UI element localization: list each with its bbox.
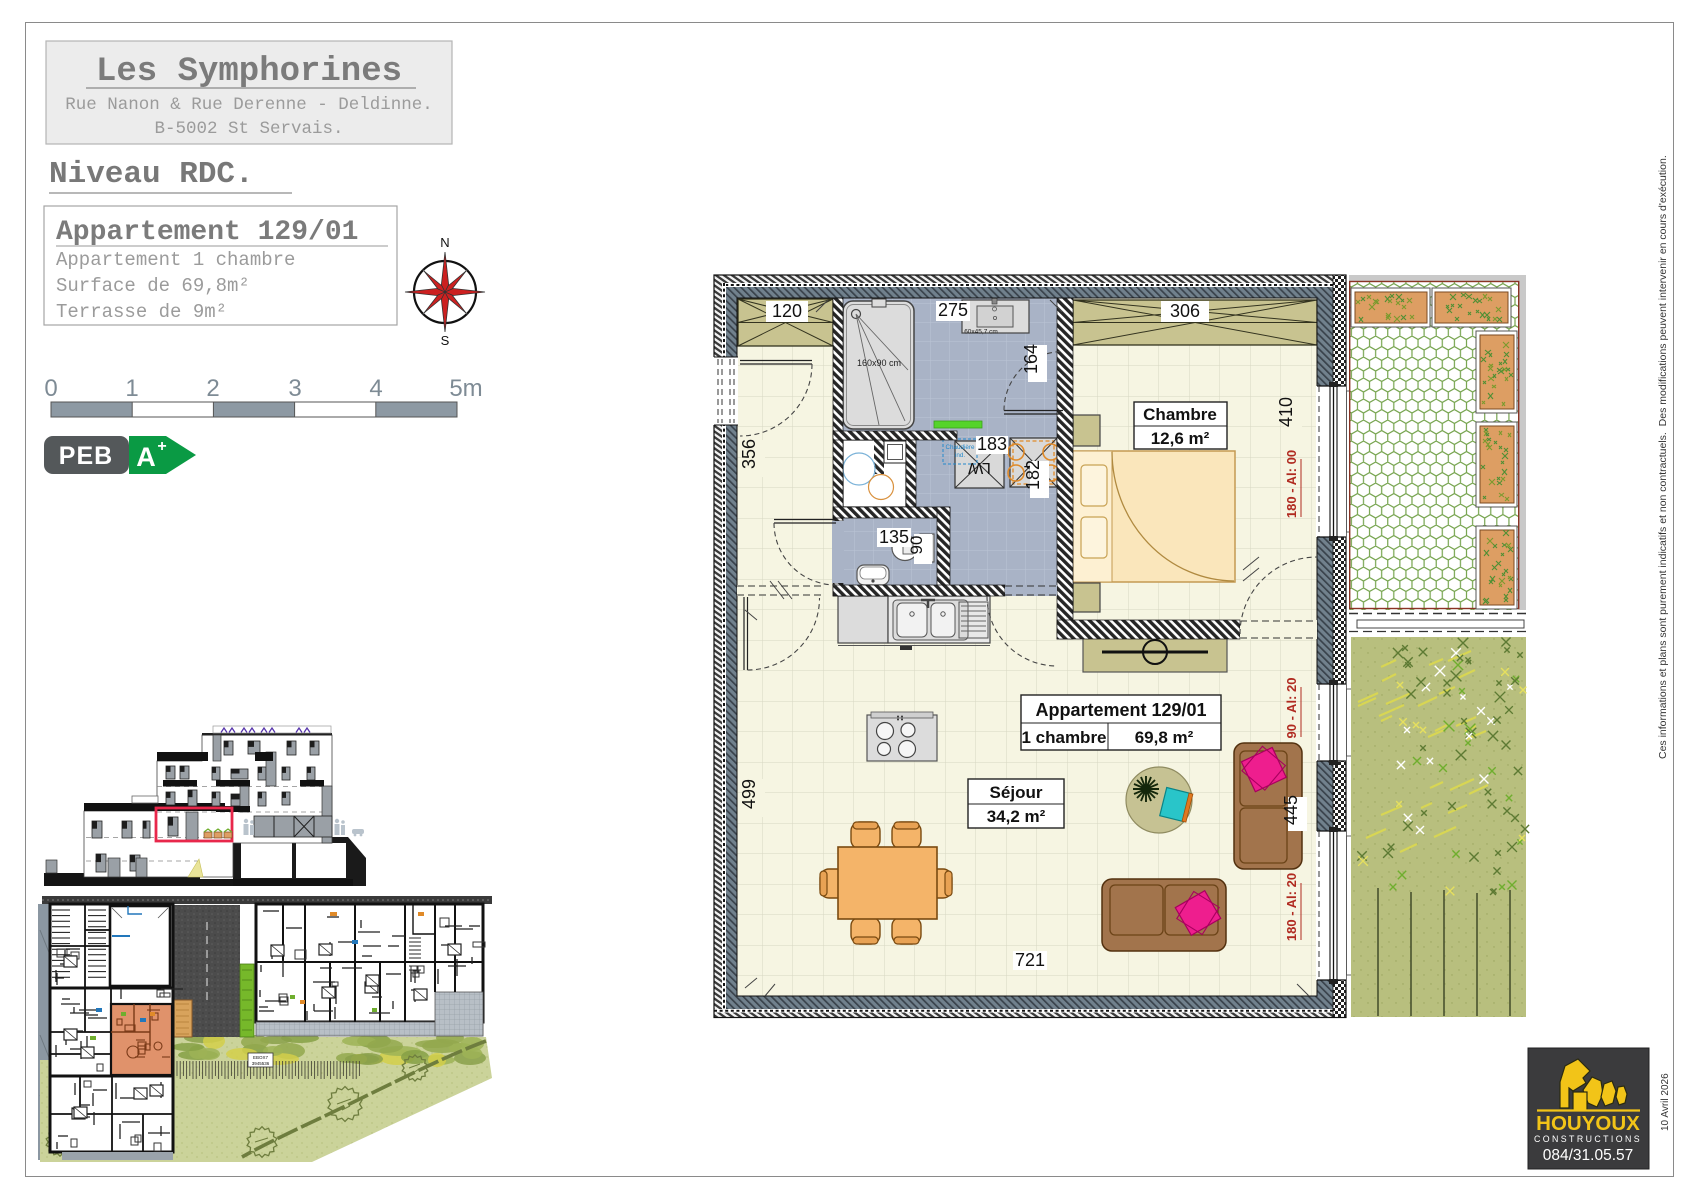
svg-text:4: 4	[369, 375, 382, 402]
svg-text:60x45,7 cm: 60x45,7 cm	[964, 329, 998, 336]
svg-text:Terrasse de 9m²: Terrasse de 9m²	[56, 301, 227, 323]
svg-text:445: 445	[1281, 795, 1301, 825]
svg-text:CONSTRUCTIONS: CONSTRUCTIONS	[1534, 1134, 1642, 1144]
svg-text:Appartement 1 chambre: Appartement 1 chambre	[56, 249, 295, 271]
svg-text:S: S	[441, 333, 450, 348]
svg-text:0: 0	[44, 375, 57, 402]
svg-text:+: +	[157, 438, 166, 455]
svg-text:135: 135	[879, 527, 909, 547]
svg-text:Rue Nanon & Rue Derenne - Deld: Rue Nanon & Rue Derenne - Deldinne.	[65, 95, 433, 115]
svg-text:275: 275	[938, 300, 968, 320]
svg-text:182: 182	[1023, 460, 1043, 490]
svg-text:Appartement 129/01: Appartement 129/01	[1035, 700, 1206, 720]
svg-text:1: 1	[125, 375, 138, 402]
svg-text:HOUYOUX: HOUYOUX	[1536, 1112, 1640, 1135]
svg-text:69,8 m²: 69,8 m²	[1135, 728, 1194, 747]
svg-text:499: 499	[739, 779, 759, 809]
svg-text:Appartement 129/01: Appartement 129/01	[56, 217, 358, 248]
svg-text:1 chambre: 1 chambre	[1021, 728, 1106, 747]
svg-text:Séjour: Séjour	[990, 783, 1043, 802]
svg-text:180 - Al: 00: 180 - Al: 00	[1284, 450, 1299, 518]
svg-text:B-5002 St Servais.: B-5002 St Servais.	[154, 119, 343, 139]
svg-text:90 - Al: 20: 90 - Al: 20	[1284, 678, 1299, 739]
svg-text:183: 183	[977, 434, 1007, 454]
svg-text:EBOX7: EBOX7	[253, 1055, 269, 1060]
svg-text:Les Symphorines: Les Symphorines	[96, 53, 402, 91]
svg-text:164: 164	[1021, 344, 1041, 374]
svg-text:2: 2	[206, 375, 219, 402]
svg-text:N: N	[440, 235, 449, 250]
svg-text:356: 356	[739, 439, 759, 469]
svg-text:PЕB: PЕB	[59, 442, 113, 470]
svg-text:10 Avril 2026: 10 Avril 2026	[1660, 1073, 1671, 1131]
svg-text:LW: LW	[967, 459, 991, 476]
svg-text:Surface de 69,8m²: Surface de 69,8m²	[56, 275, 250, 297]
svg-text:160x90 cm: 160x90 cm	[857, 358, 901, 368]
svg-text:Chambre: Chambre	[1143, 405, 1217, 424]
svg-text:Chaudière: Chaudière	[945, 444, 975, 451]
svg-text:Ces informations et plans sont: Ces informations et plans sont purement …	[1657, 155, 1669, 759]
svg-text:Niveau RDC.: Niveau RDC.	[49, 157, 254, 192]
svg-text:306: 306	[1170, 301, 1200, 321]
svg-text:12,6 m²: 12,6 m²	[1151, 429, 1210, 448]
svg-text:3945536: 3945536	[252, 1061, 270, 1066]
svg-text:34,2 m²: 34,2 m²	[987, 807, 1046, 826]
svg-text:410: 410	[1276, 397, 1296, 427]
svg-text:721: 721	[1015, 950, 1045, 970]
svg-text:180 - Al: 20: 180 - Al: 20	[1284, 873, 1299, 941]
svg-text:ind.: ind.	[955, 452, 965, 459]
svg-text:3: 3	[288, 375, 301, 402]
svg-text:A: A	[136, 442, 156, 472]
svg-text:120: 120	[772, 301, 802, 321]
svg-text:5m: 5m	[449, 375, 482, 402]
svg-text:90: 90	[907, 536, 926, 555]
svg-text:084/31.05.57: 084/31.05.57	[1543, 1147, 1634, 1164]
